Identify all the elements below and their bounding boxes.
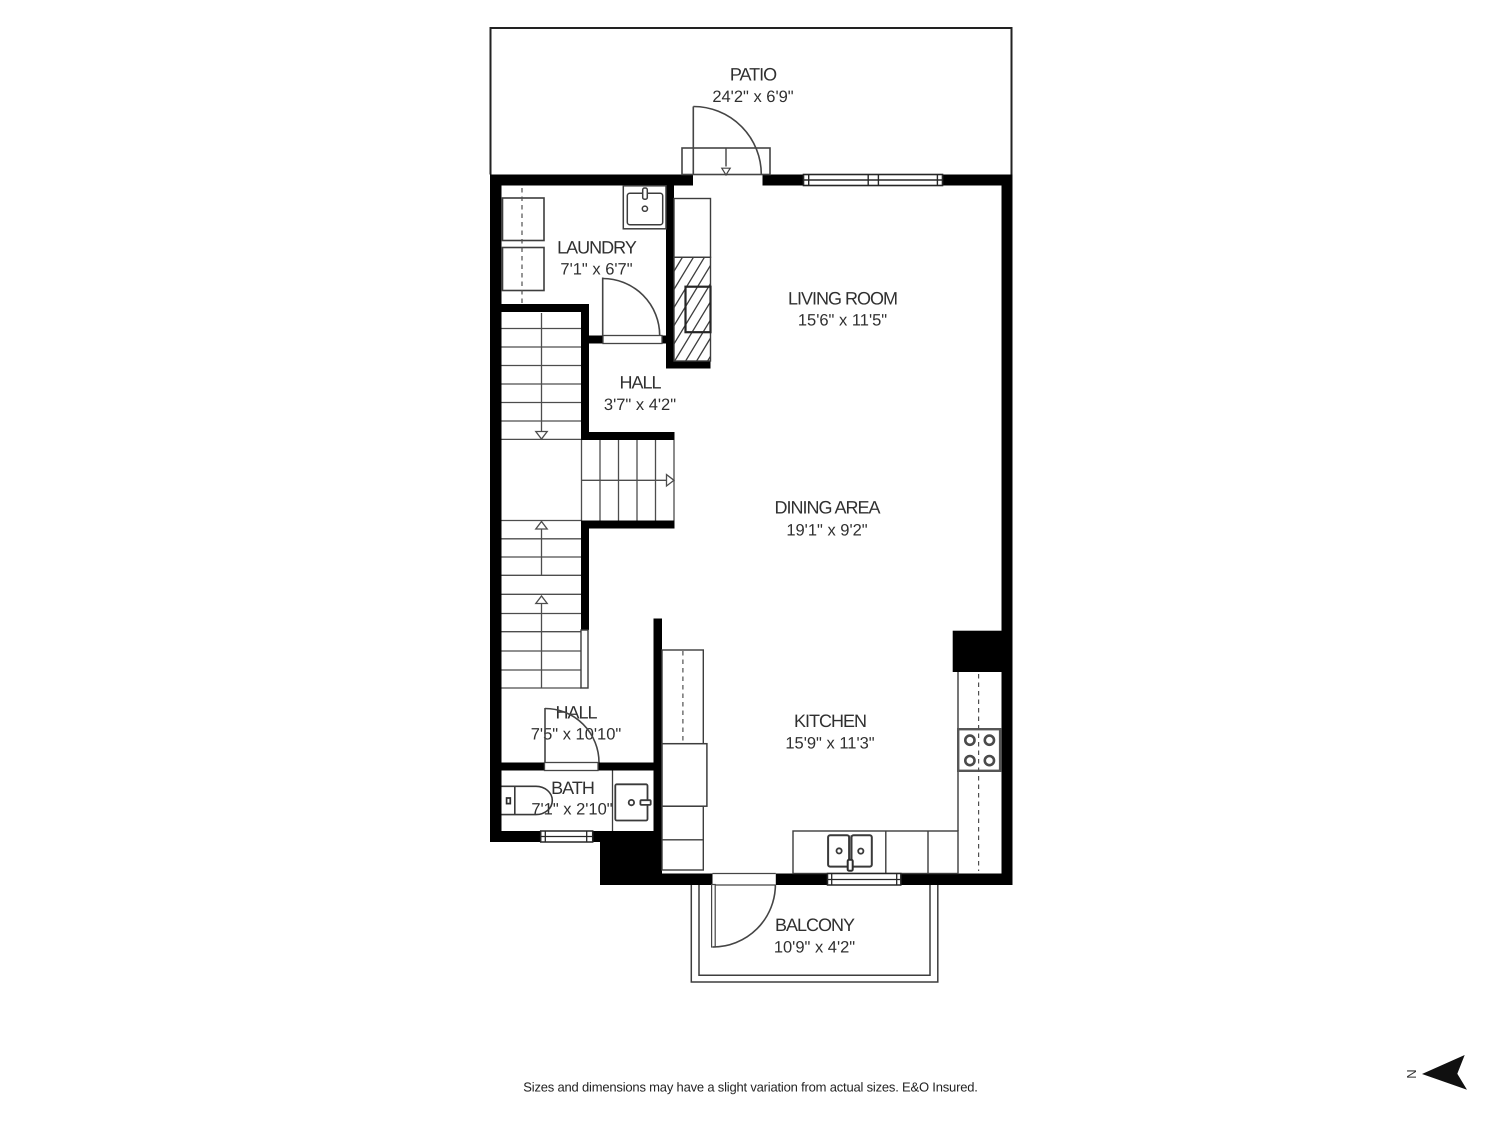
svg-text:3'7" x 4'2": 3'7" x 4'2" bbox=[604, 396, 676, 414]
svg-text:DINING AREA: DINING AREA bbox=[774, 498, 880, 518]
svg-text:15'6" x 11'5": 15'6" x 11'5" bbox=[798, 312, 887, 330]
svg-text:PATIO: PATIO bbox=[730, 65, 777, 85]
svg-text:LIVING ROOM: LIVING ROOM bbox=[788, 289, 897, 309]
svg-text:N: N bbox=[1404, 1069, 1419, 1078]
svg-text:Sizes and dimensions may have: Sizes and dimensions may have a slight v… bbox=[523, 1080, 977, 1095]
svg-text:7'1" x 6'7": 7'1" x 6'7" bbox=[560, 261, 632, 279]
svg-text:24'2" x 6'9": 24'2" x 6'9" bbox=[712, 88, 793, 106]
svg-text:KITCHEN: KITCHEN bbox=[794, 711, 866, 731]
svg-text:BALCONY: BALCONY bbox=[775, 915, 855, 935]
svg-text:15'9" x 11'3": 15'9" x 11'3" bbox=[785, 735, 874, 753]
svg-text:19'1" x 9'2": 19'1" x 9'2" bbox=[786, 522, 867, 540]
svg-text:7'1" x 2'10": 7'1" x 2'10" bbox=[531, 801, 612, 819]
svg-text:LAUNDRY: LAUNDRY bbox=[557, 238, 637, 258]
svg-text:HALL: HALL bbox=[619, 373, 661, 393]
svg-text:10'9" x 4'2": 10'9" x 4'2" bbox=[774, 939, 855, 957]
svg-text:BATH: BATH bbox=[551, 778, 594, 798]
